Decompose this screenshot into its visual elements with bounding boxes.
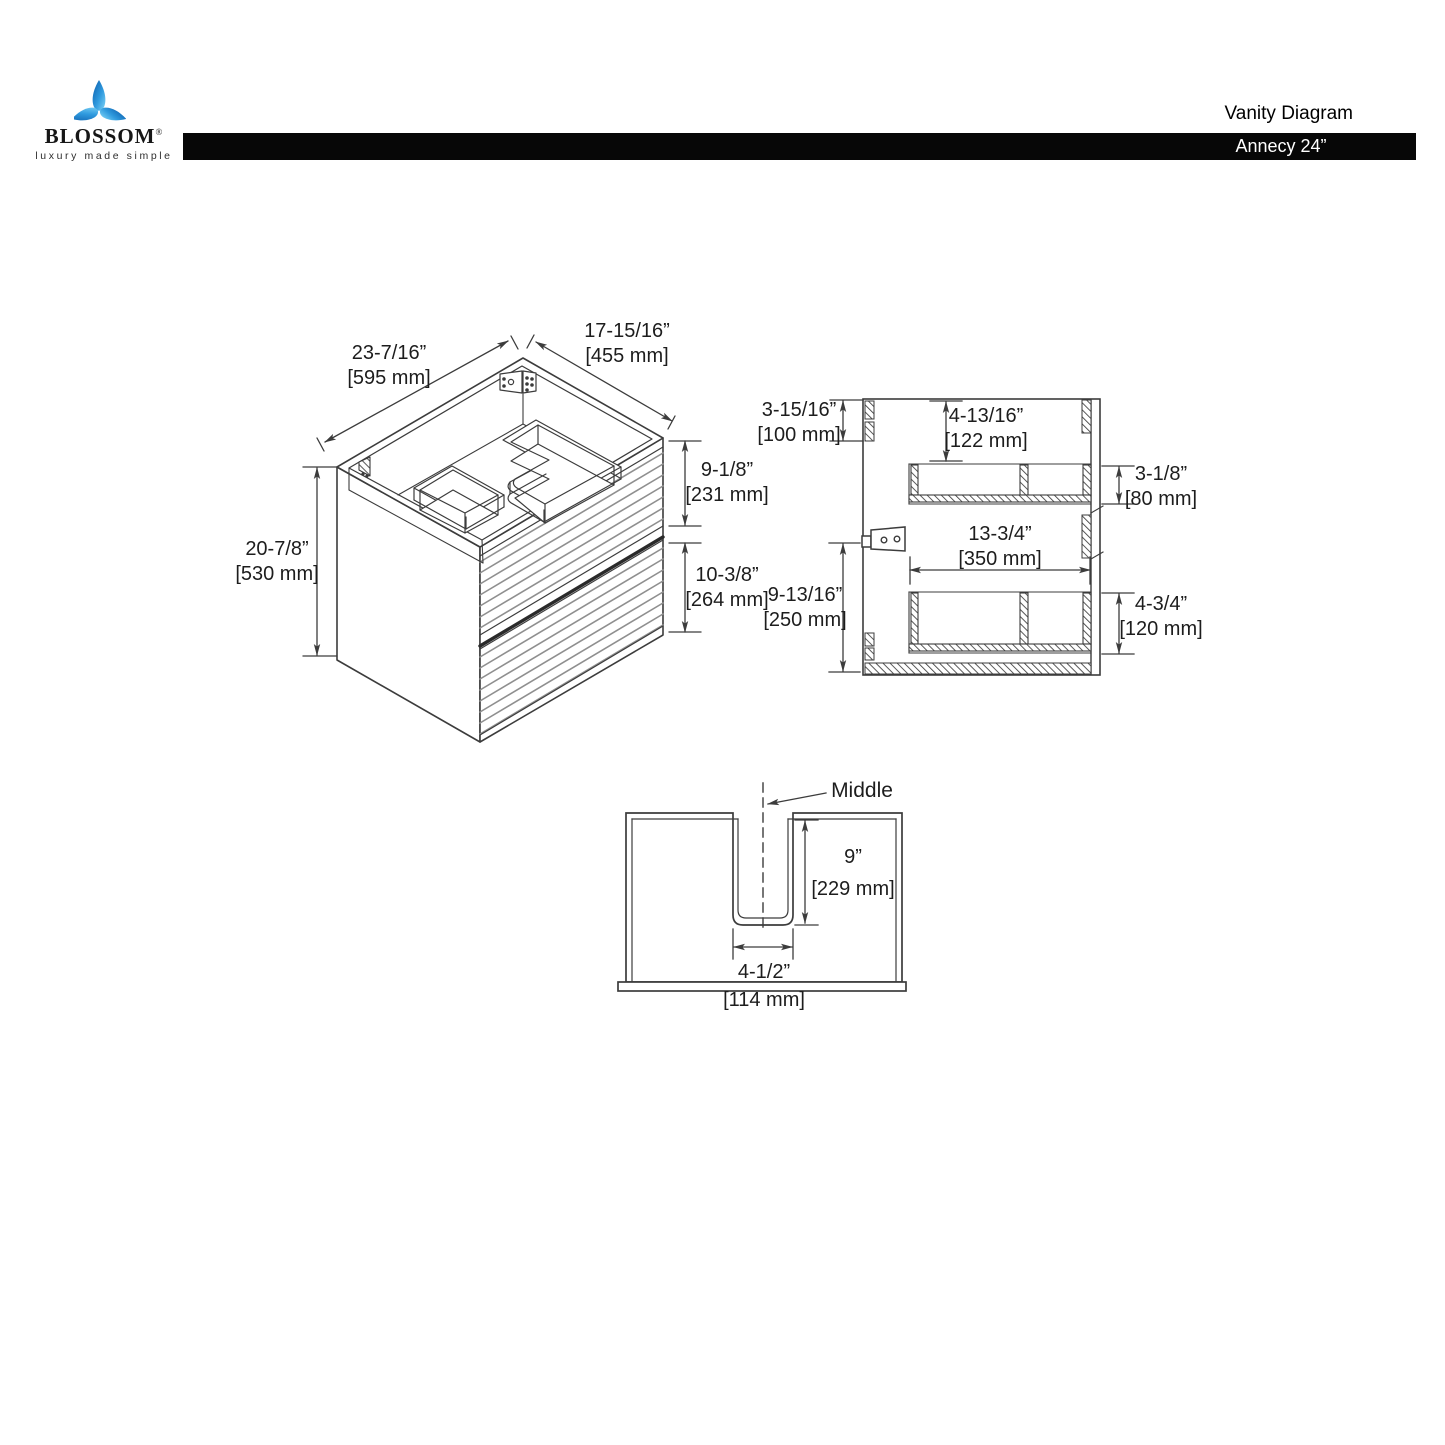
vanity-diagram-page: BLOSSOM® luxury made simple Vanity Diagr…: [0, 0, 1445, 1445]
isometric-view: [303, 335, 701, 742]
dim-label-upper-drawer: 9-1/8” [231 mm]: [647, 458, 807, 508]
dim-label-top-offset: 3-15/16” [100 mm]: [719, 398, 879, 448]
dim-label-drawer-width: 13-3/4” [350 mm]: [920, 522, 1080, 572]
diagram-line-art: [0, 0, 1445, 1445]
dim-label-cutout-depth: 9” [229 mm]: [773, 841, 933, 905]
dim-label-top-width: 17-15/16” [455 mm]: [547, 319, 707, 369]
dim-label-top-depth: 23-7/16” [595 mm]: [309, 341, 469, 391]
dim-label-cutout-width: 4-1/2” [114 mm]: [684, 958, 844, 1014]
dim-label-lower-drawer-depth: 4-3/4” [120 mm]: [1081, 592, 1241, 642]
dim-label-upper-drawer-depth: 3-1/8” [80 mm]: [1081, 462, 1241, 512]
dim-label-lower-section: 9-13/16” [250 mm]: [725, 583, 885, 633]
mount-bracket-top: [500, 371, 536, 393]
dim-label-top-to-drawer: 4-13/16” [122 mm]: [906, 404, 1066, 454]
middle-label: Middle: [782, 779, 942, 803]
dim-label-height: 20-7/8” [530 mm]: [197, 537, 357, 587]
